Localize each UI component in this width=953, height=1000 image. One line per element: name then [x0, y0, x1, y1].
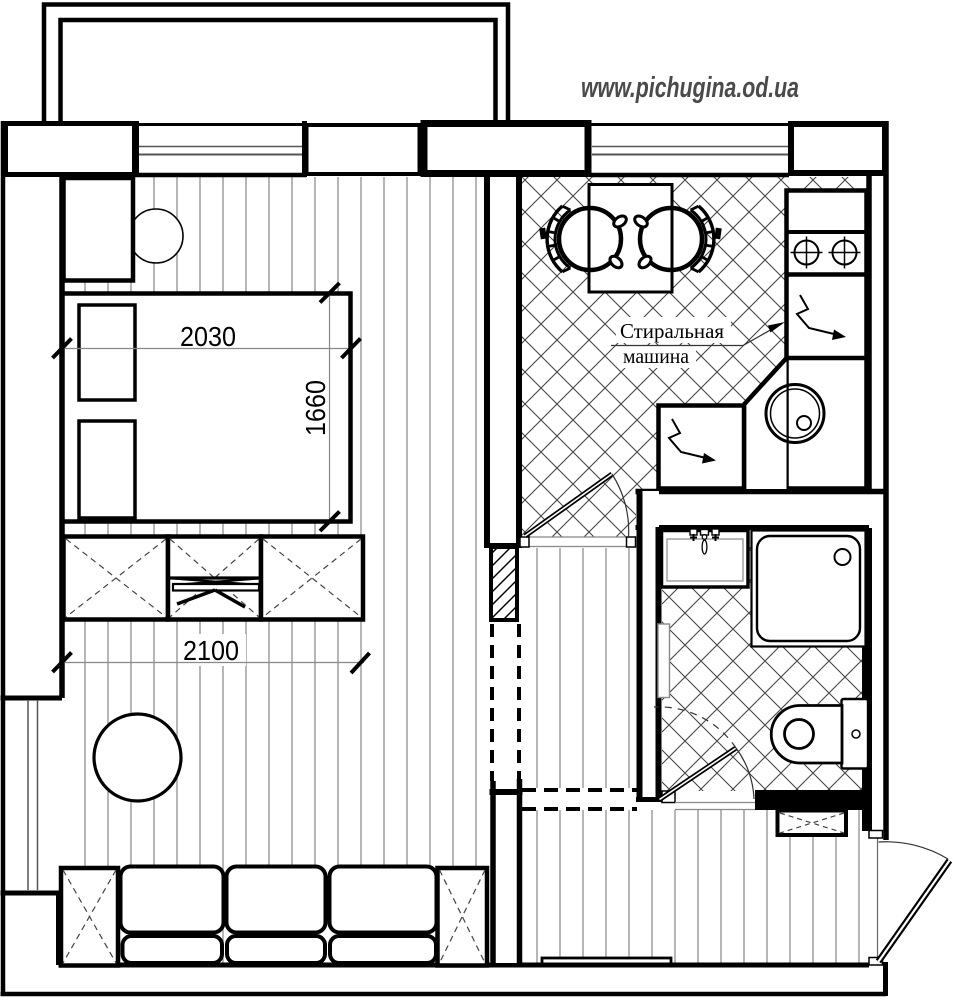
svg-text:1660: 1660	[300, 380, 331, 436]
svg-text:2030: 2030	[180, 321, 236, 352]
svg-text:www.pichugina.od.ua: www.pichugina.od.ua	[581, 72, 799, 104]
svg-text:Стиральная: Стиральная	[620, 319, 724, 343]
svg-text:2100: 2100	[183, 635, 239, 666]
svg-text:машина: машина	[623, 344, 689, 368]
